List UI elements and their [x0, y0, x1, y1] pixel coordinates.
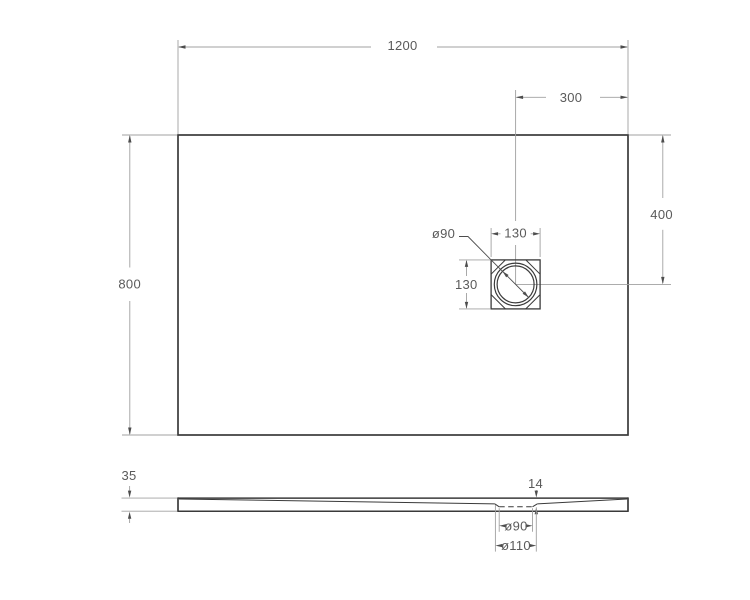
svg-text:400: 400	[650, 207, 673, 222]
svg-text:1200: 1200	[387, 38, 417, 53]
svg-text:300: 300	[560, 90, 583, 105]
svg-text:35: 35	[121, 468, 136, 483]
svg-text:14: 14	[528, 476, 543, 491]
svg-text:130: 130	[504, 226, 527, 241]
svg-text:800: 800	[118, 276, 141, 291]
svg-text:ø90: ø90	[504, 518, 527, 533]
svg-text:ø110: ø110	[501, 538, 531, 553]
svg-text:130: 130	[455, 277, 478, 292]
svg-text:ø90: ø90	[432, 226, 455, 241]
